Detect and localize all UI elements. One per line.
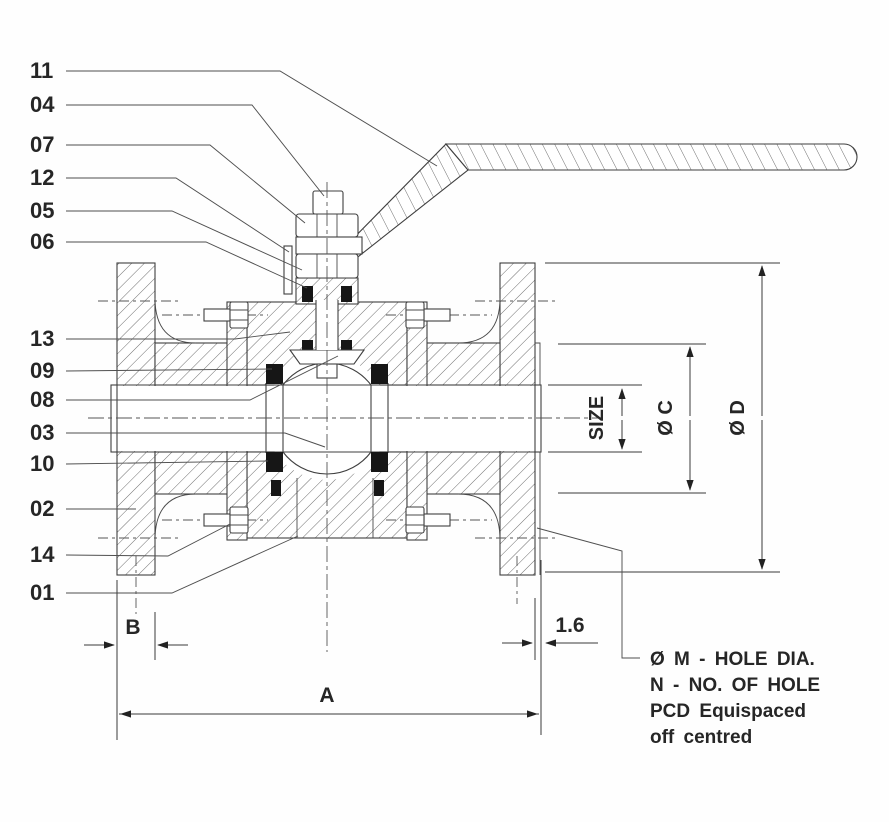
part-label-04: 04 (30, 92, 55, 117)
note-line-2: N - NO. OF HOLE (650, 675, 820, 696)
gland-packing (302, 286, 313, 302)
part-label-12: 12 (30, 165, 54, 190)
note-line-1: Ø M - HOLE DIA. (650, 649, 815, 670)
part-label-13: 13 (30, 326, 54, 351)
seat-ring (371, 364, 388, 384)
diameter-dimensions: SIZE Ø C Ø D (545, 263, 780, 572)
dim-label-a: A (319, 684, 334, 707)
fillet (155, 298, 196, 343)
bottom-dimensions: B 1.6 A (84, 560, 598, 740)
leader-11 (66, 71, 437, 166)
part-label-06: 06 (30, 229, 54, 254)
seat-ring (371, 452, 388, 472)
bolt-nut (406, 507, 424, 533)
note-leader (537, 528, 640, 658)
leader-06 (66, 242, 307, 288)
bolt-nut (230, 507, 248, 533)
part-label-02: 02 (30, 496, 54, 521)
fillet (458, 298, 500, 343)
leader-01 (66, 536, 298, 593)
fillet (458, 494, 500, 540)
bore-cut (111, 386, 541, 451)
body-seal (271, 480, 281, 496)
gland-packing (341, 286, 352, 302)
leader-12 (66, 178, 289, 252)
dim-label-d: Ø D (727, 400, 749, 436)
note-line-4: off centred (650, 727, 752, 748)
handle-base-plate (296, 237, 362, 254)
seat-ring (266, 364, 283, 384)
bolt-stud (204, 309, 230, 321)
stem-top (313, 191, 343, 214)
part-label-08: 08 (30, 387, 54, 412)
bolt-stud (204, 514, 230, 526)
flange-drilling-note: Ø M - HOLE DIA. N - NO. OF HOLE PCD Equi… (537, 528, 820, 748)
handle (336, 144, 857, 260)
right-raised-face (535, 385, 541, 452)
bolt-stud (424, 309, 450, 321)
bolt-nut (406, 302, 424, 328)
handle-lever-bar (446, 144, 857, 170)
leader-05 (66, 211, 302, 270)
left-raised-face (111, 385, 117, 452)
part-label-14: 14 (30, 542, 55, 567)
seat-ring (266, 452, 283, 472)
part-label-01: 01 (30, 580, 54, 605)
lock-tab-washer (284, 246, 292, 294)
dim-label-c: Ø C (655, 400, 677, 436)
fillet (155, 494, 196, 540)
dim-label-raised-face: 1.6 (555, 614, 584, 637)
body-seal (374, 480, 384, 496)
part-labels: 11 04 07 12 05 06 13 09 08 03 10 02 14 0… (30, 58, 55, 605)
drawing-canvas: 11 04 07 12 05 06 13 09 08 03 10 02 14 0… (0, 0, 889, 822)
part-label-11: 11 (30, 58, 53, 83)
part-label-05: 05 (30, 198, 54, 223)
dim-label-size: SIZE (586, 396, 608, 440)
bolt-nut (230, 302, 248, 328)
part-label-09: 09 (30, 358, 54, 383)
leader-04 (66, 105, 324, 196)
ball-valve-technical-drawing: 11 04 07 12 05 06 13 09 08 03 10 02 14 0… (0, 0, 889, 822)
part-label-10: 10 (30, 451, 54, 476)
dim-label-b: B (125, 616, 140, 639)
flange-step (535, 343, 540, 575)
note-line-3: PCD Equispaced (650, 701, 806, 722)
part-label-07: 07 (30, 132, 54, 157)
bolt-stud (424, 514, 450, 526)
part-label-03: 03 (30, 420, 54, 445)
